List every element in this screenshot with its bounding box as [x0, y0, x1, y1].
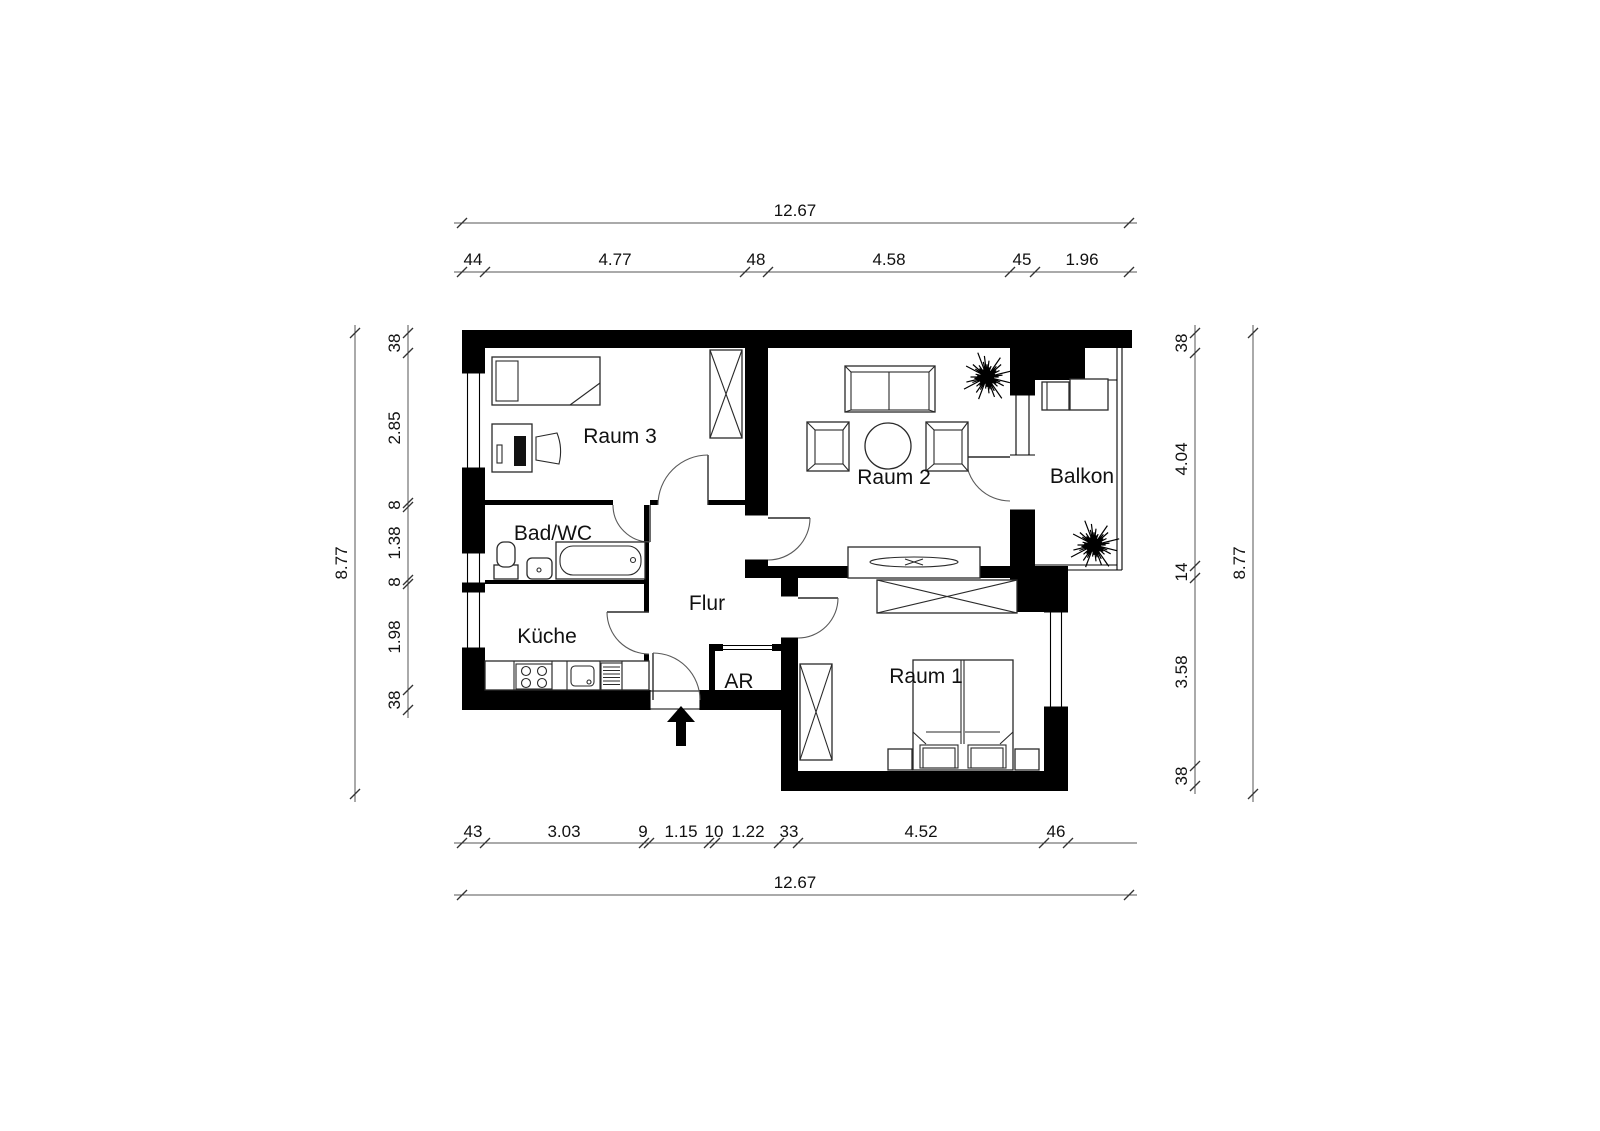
dim-right-3: 3.58: [1172, 655, 1191, 688]
dim-bottom-3: 1.15: [664, 822, 697, 841]
sideboard: [848, 547, 980, 578]
furniture-bad: [494, 542, 645, 579]
dim-left-5: 1.98: [385, 620, 404, 653]
balcony-chair: [1042, 382, 1069, 410]
door-ar-slider: [723, 644, 772, 651]
window-balkon: [1010, 395, 1035, 455]
furniture-kueche: [485, 661, 649, 690]
desk-chair: [536, 433, 561, 464]
dim-bottom-4: 10: [705, 822, 724, 841]
toilet: [494, 542, 518, 579]
dim-bottom-1: 3.03: [547, 822, 580, 841]
wardrobe-top: [877, 580, 1017, 613]
dim-right-total: 8.77: [1230, 546, 1249, 579]
dim-top-4: 45: [1013, 250, 1032, 269]
armchair-right: [926, 422, 968, 471]
dim-bottom-8: 46: [1047, 822, 1066, 841]
door-raum3: [658, 455, 708, 505]
dim-right-1: 4.04: [1172, 442, 1191, 475]
door-balkon: [966, 455, 1035, 510]
balcony-table: [1070, 379, 1108, 410]
nightstand-right: [1015, 749, 1039, 770]
dim-top-1: 4.77: [598, 250, 631, 269]
wardrobe-left: [800, 664, 832, 760]
window-raum3: [462, 373, 485, 468]
dim-right-0: 38: [1172, 334, 1191, 353]
bathtub: [556, 542, 645, 579]
nightstand-left: [888, 749, 912, 770]
dim-bottom-total: 12.67: [774, 873, 817, 892]
dim-top-total: 12.67: [774, 201, 817, 220]
dim-bottom-2: 9: [638, 822, 647, 841]
dim-bottom-7: 4.52: [904, 822, 937, 841]
door-raum1: [781, 596, 838, 638]
room-label-raum2: Raum 2: [857, 466, 931, 489]
dim-top-2: 48: [747, 250, 766, 269]
dim-left-6: 38: [385, 691, 404, 710]
dim-top-0: 44: [464, 250, 483, 269]
dim-right-4: 38: [1172, 767, 1191, 786]
furniture-balkon: [1042, 379, 1108, 410]
room-label-raum3: Raum 3: [583, 425, 657, 448]
door-kueche: [607, 612, 649, 654]
sofa: [845, 366, 935, 412]
armchair-left: [807, 422, 849, 471]
furniture-raum3: [492, 350, 742, 472]
door-entrance: [650, 653, 700, 710]
dim-left-2: 8: [385, 500, 404, 509]
floor-plan-drawing: 12.67 44 4.77 48 4.58 45 1.96 12.67 43 3…: [0, 0, 1600, 1131]
door-raum2: [745, 515, 810, 560]
room-label-ar: AR: [724, 670, 753, 693]
room-label-bad: Bad/WC: [514, 522, 592, 545]
dim-top-3: 4.58: [872, 250, 905, 269]
plant-icon: [1071, 521, 1119, 567]
room-label-kueche: Küche: [517, 625, 577, 648]
pc-tower: [514, 436, 526, 466]
dim-bottom-6: 33: [780, 822, 799, 841]
dim-left-total: 8.77: [332, 546, 351, 579]
sink: [527, 558, 552, 579]
window-bad: [462, 553, 485, 583]
dim-left-3: 1.38: [385, 526, 404, 559]
entrance-arrow: [667, 706, 695, 746]
bed-single: [492, 357, 600, 405]
round-table: [865, 423, 911, 469]
window-raum1: [1044, 612, 1068, 707]
dim-bottom-5: 1.22: [731, 822, 764, 841]
floor-plan-page: 12.67 44 4.77 48 4.58 45 1.96 12.67 43 3…: [0, 0, 1600, 1131]
window-kueche: [462, 592, 485, 648]
plant-icon: [964, 353, 1012, 399]
dim-bottom-0: 43: [464, 822, 483, 841]
room-label-balkon: Balkon: [1050, 465, 1114, 488]
dim-left-1: 2.85: [385, 411, 404, 444]
dim-top-5: 1.96: [1065, 250, 1098, 269]
dim-left-0: 38: [385, 334, 404, 353]
dim-right-2: 14: [1172, 563, 1191, 582]
room-label-flur: Flur: [689, 592, 725, 615]
dim-left-4: 8: [385, 577, 404, 586]
room-label-raum1: Raum 1: [889, 665, 963, 688]
